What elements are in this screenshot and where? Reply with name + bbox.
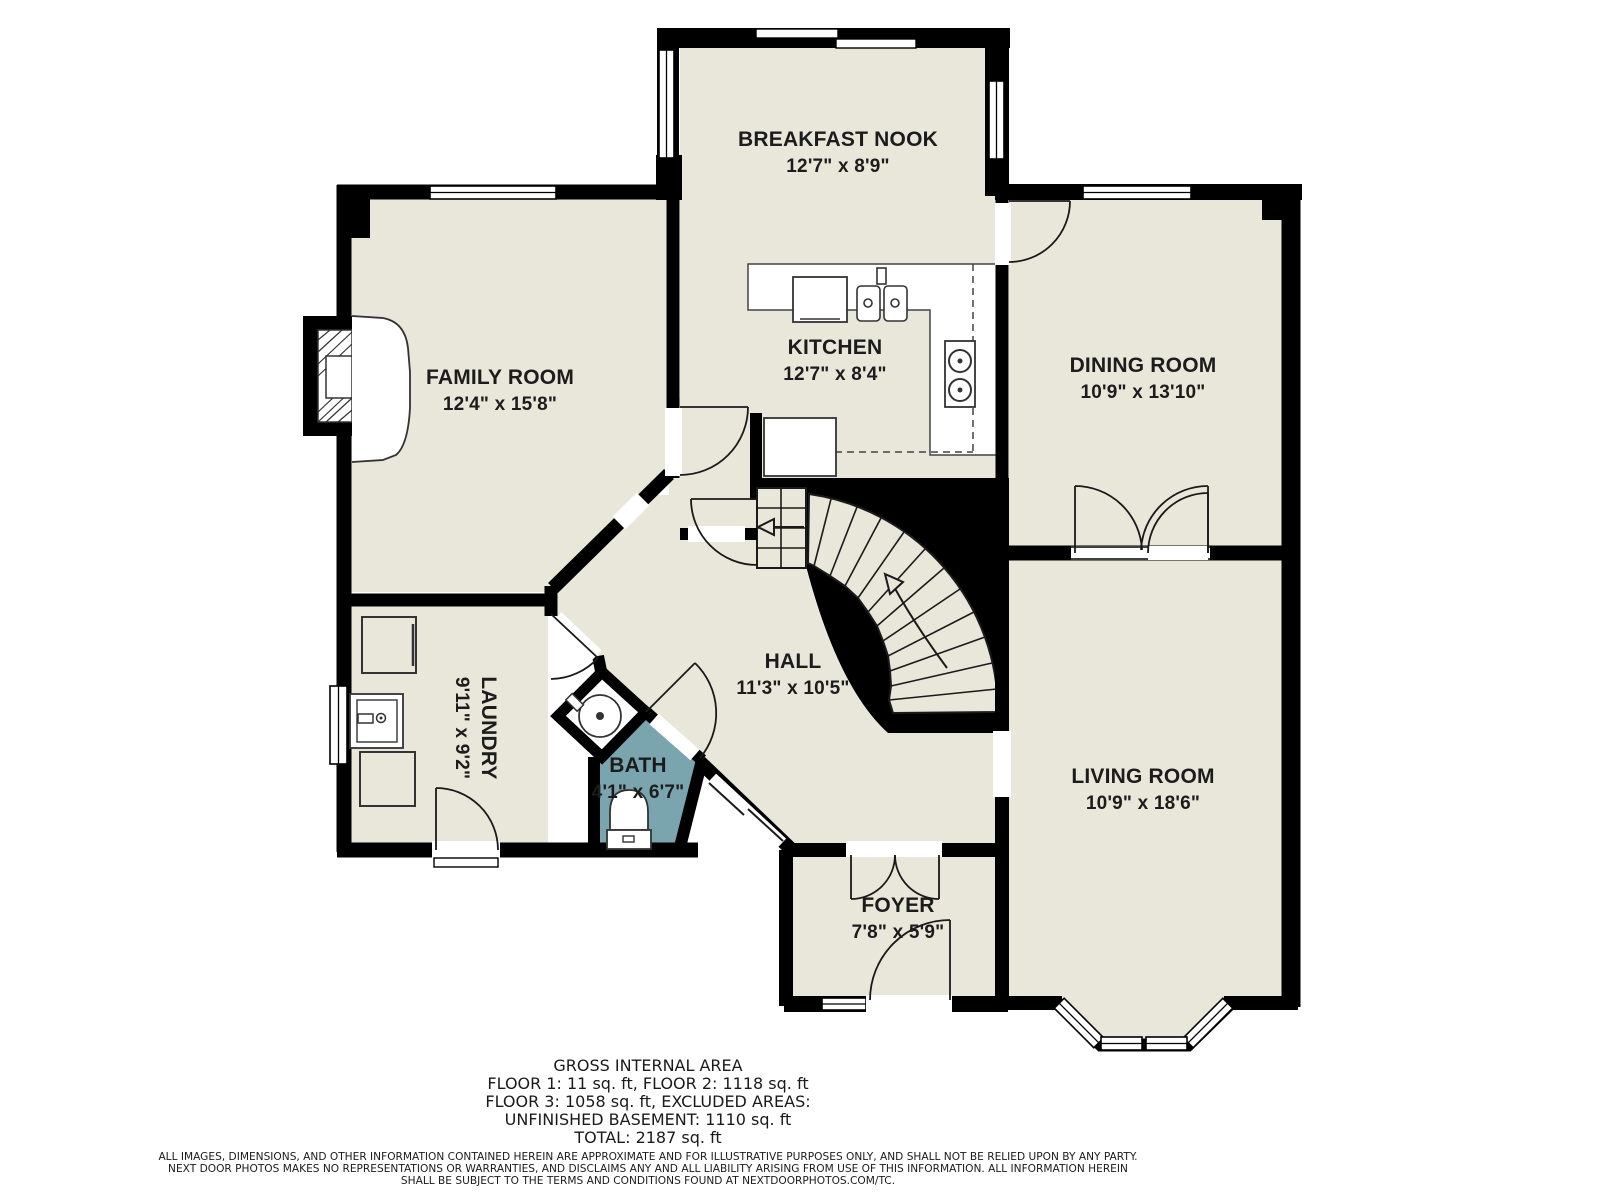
family-room-window (430, 186, 556, 199)
utility-sink (350, 694, 403, 748)
footer-line1: FLOOR 1: 11 sq. ft, FLOOR 2: 1118 sq. ft (487, 1074, 808, 1093)
dryer (360, 752, 415, 806)
dims-kitchen: 12'7" x 8'4" (783, 364, 886, 385)
label-hall: HALL (765, 650, 822, 673)
label-living-room: LIVING ROOM (1071, 765, 1214, 788)
nook-right-window (989, 81, 1004, 159)
dining-room-window (1083, 186, 1191, 199)
footer-disclaimer-1: ALL IMAGES, DIMENSIONS, AND OTHER INFORM… (158, 1151, 1137, 1163)
washer (362, 617, 416, 673)
label-bath: BATH (609, 754, 667, 777)
label-laundry: LAUNDRY (477, 676, 500, 779)
floor-plan: BREAKFAST NOOK 12'7" x 8'9" KITCHEN 12'7… (0, 0, 1600, 1200)
footer-disclaimer-3: SHALL BE SUBJECT TO THE TERMS AND CONDIT… (401, 1175, 895, 1187)
dims-breakfast-nook: 12'7" x 8'9" (786, 156, 889, 177)
fireplace (303, 316, 410, 462)
foyer-window (822, 998, 866, 1010)
label-foyer: FOYER (861, 894, 934, 917)
stove (945, 341, 975, 407)
dishwasher (793, 277, 847, 322)
label-dining-room: DINING ROOM (1070, 354, 1217, 377)
footer-line4: TOTAL: 2187 sq. ft (573, 1128, 721, 1147)
dims-family-room: 12'4" x 15'8" (443, 394, 557, 415)
footer-line2: FLOOR 3: 1058 sq. ft, EXCLUDED AREAS: (485, 1092, 810, 1111)
refrigerator (764, 418, 836, 476)
label-kitchen: KITCHEN (788, 336, 883, 359)
label-breakfast-nook: BREAKFAST NOOK (738, 128, 938, 151)
dims-bath: 4'1" x 6'7" (592, 782, 685, 803)
footer-title: GROSS INTERNAL AREA (553, 1056, 742, 1075)
laundry-window (330, 686, 347, 764)
nook-left-window (659, 50, 674, 158)
dims-living-room: 10'9" x 18'6" (1086, 793, 1200, 814)
footer-line3: UNFINISHED BASEMENT: 1110 sq. ft (505, 1110, 792, 1129)
footer-disclaimer-2: NEXT DOOR PHOTOS MAKES NO REPRESENTATION… (168, 1163, 1128, 1175)
dims-laundry: 9'11" x 9'2" (451, 677, 472, 779)
dims-dining-room: 10'9" x 13'10" (1081, 382, 1206, 403)
dims-hall: 11'3" x 10'5" (736, 678, 849, 699)
label-family-room: FAMILY ROOM (426, 366, 574, 389)
dims-foyer: 7'8" x 5'9" (852, 922, 945, 943)
floor-plan-page: BREAKFAST NOOK 12'7" x 8'9" KITCHEN 12'7… (0, 0, 1600, 1200)
footer: GROSS INTERNAL AREA FLOOR 1: 11 sq. ft, … (158, 1056, 1137, 1187)
hearth (352, 316, 410, 462)
